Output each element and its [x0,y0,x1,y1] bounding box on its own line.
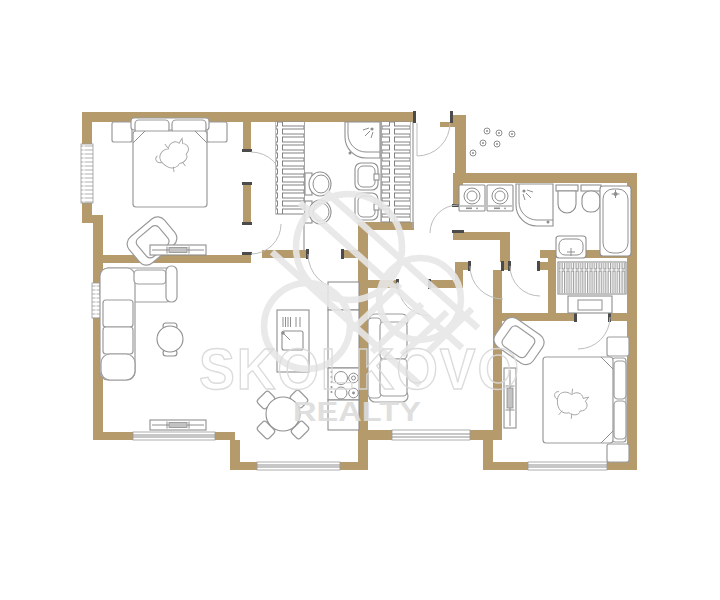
watermark-tagline-text: REALTY [293,397,421,427]
sink-bathroom1-a [355,163,379,190]
wardrobe-rail [558,262,626,294]
bedroom-1 [112,118,227,269]
dryer [487,185,513,211]
window-bedroom1 [81,144,93,203]
shelf-bedroom2 [568,296,612,313]
bedroom2-door [574,312,611,349]
hall-corridor-door [508,261,540,296]
floor-plan-canvas: SKOLKOVO REALTY [0,0,720,600]
entrance-door [413,111,453,156]
window-living-bottom [133,432,215,440]
double-bed [112,118,227,207]
window-bedroom2 [528,462,607,470]
vanity-sink-bathroom2 [556,236,586,258]
radiator-living [150,420,206,430]
entry-hall [470,128,515,156]
washing-machine [459,185,485,211]
living-room [100,266,206,430]
coffee-table [157,323,183,356]
corner-shower-bathroom1 [345,122,380,158]
corner-shower-bathroom2 [516,184,553,226]
bathtub [600,186,631,256]
double-bed-2 [543,337,629,462]
toilet-bathroom2 [556,185,578,213]
shelf-unit-left [276,122,304,214]
radiator-bedroom1 [150,245,206,255]
watermark-brand-text: SKOLKOVO [199,337,521,401]
bathroom-2 [459,184,631,258]
window-bay [257,462,340,470]
bidet-bathroom2 [581,185,601,212]
coat-hooks [470,128,515,156]
floor-plan-drawing: SKOLKOVO REALTY [0,0,720,600]
window-study [392,430,470,440]
